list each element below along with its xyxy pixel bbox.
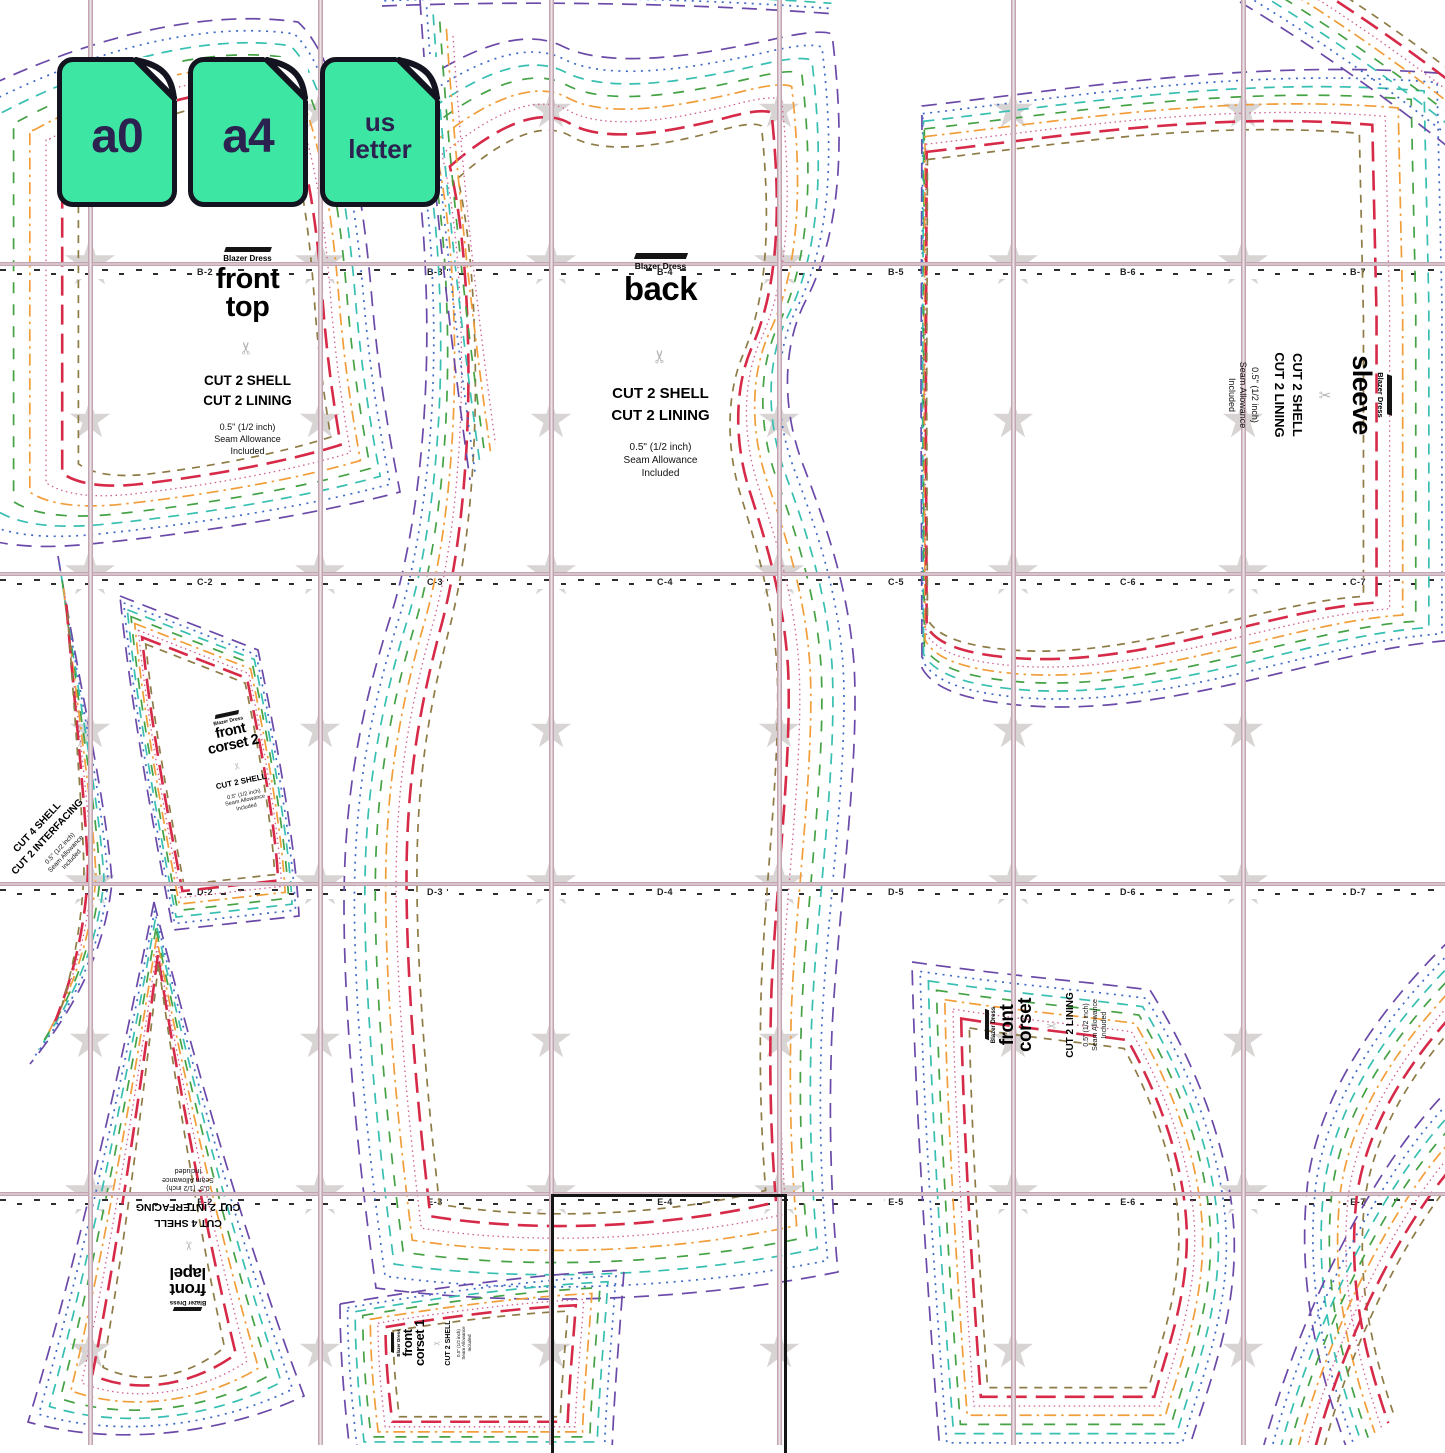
pattern-outline-size-8 — [1362, 1005, 1445, 1418]
cut-instructions: CUT 2 SHELL — [445, 1281, 452, 1406]
pattern-outline-size-5 — [1338, 976, 1445, 1432]
brand-logo-mark — [985, 1009, 989, 1040]
page-boundary-hline — [0, 572, 1445, 576]
brand-logo-mark — [391, 1332, 394, 1353]
seam-allowance-note: 0.5" (1/2 inch)Seam AllowanceIncluded — [558, 441, 763, 480]
pattern-outline-size-8 — [1296, 0, 1445, 93]
scissors-icon: ✂ — [558, 346, 763, 367]
badge-a4[interactable]: a4 — [188, 57, 308, 207]
cut-instructions: CUT 2 SHELLCUT 2 LINING — [558, 383, 763, 427]
piece-label-front-corset: Blazer Dress frontcorset ✂ CUT 2 LINING … — [985, 938, 1135, 1113]
pattern-outline-size-6 — [1307, 1136, 1445, 1445]
pattern-outline-size-3 — [365, 59, 833, 1275]
page-fold-icon — [264, 57, 308, 101]
piece-outline-top-partial — [382, 0, 836, 14]
pattern-layout-canvas: { "brand": {"name": "Blazer Dress"}, "ba… — [0, 0, 1445, 1445]
pattern-outline-size-4 — [1264, 0, 1445, 125]
pattern-outline-size-4 — [1289, 1116, 1445, 1445]
badge-us-letter[interactable]: usletter — [320, 57, 440, 207]
piece-name: frontcorset — [999, 938, 1035, 1113]
piece-name: frontcorset 1 — [402, 1281, 427, 1406]
piece-name: sleeve — [1348, 245, 1374, 545]
cut-instructions: CUT 4 SHELLCUT 2 INTERFACING — [96, 1199, 281, 1229]
badge-label: a4 — [193, 109, 303, 164]
pattern-outline-size-3 — [1280, 1106, 1445, 1445]
piece-name: back — [558, 273, 763, 304]
pattern-outline-size-4 — [1329, 967, 1445, 1438]
brand-name: Blazer Dress — [150, 254, 345, 263]
pattern-outline-size-6 — [453, 36, 496, 444]
seam-allowance-note: 0.5" (1/2 inch)Seam AllowanceIncluded — [150, 422, 345, 457]
piece-label-back: Blazer Dress back ✂ CUT 2 SHELLCUT 2 LIN… — [558, 253, 763, 480]
seam-allowance-note: 0.5" (1/2 inch)Seam AllowanceIncluded — [456, 1281, 473, 1406]
pattern-outline-size-5 — [1298, 1126, 1445, 1445]
page-boundary-vline — [88, 0, 93, 1445]
scissors-icon: ✂ — [1316, 245, 1334, 545]
scissors-icon: ✂ — [150, 338, 345, 358]
brand-logo-mark — [1387, 374, 1392, 416]
page-fold-icon — [133, 57, 177, 101]
page-boundary-hline — [0, 882, 1445, 886]
badge-label: usletter — [325, 109, 435, 164]
page-fold-icon — [396, 57, 440, 101]
page-boundary-vline — [318, 0, 323, 1445]
selected-page-outline[interactable] — [551, 1194, 787, 1453]
piece-label-sleeve: Blazer Dress sleeve ✂ CUT 2 SHELLCUT 2 L… — [1242, 245, 1392, 545]
seam-allowance-note: 0.5" (1/2 inch)Seam AllowanceIncluded — [1083, 938, 1109, 1113]
seam-allowance-note: 0.5" (1/2 inch)Seam AllowanceIncluded — [1226, 245, 1260, 545]
cut-instructions: CUT 2 SHELLCUT 2 LINING — [150, 371, 345, 410]
piece-label-front-corset-1: Blazer Dress frontcorset 1 ✂ CUT 2 SHELL… — [391, 1281, 491, 1406]
piece-name: fronttop — [150, 266, 345, 321]
piece-label-front-lapel: Blazer Dress frontlapel ✂ CUT 4 SHELLCUT… — [96, 1165, 281, 1311]
pattern-outline-size-3 — [387, 0, 832, 3]
cut-instructions: CUT 2 LINING — [1065, 938, 1076, 1113]
piece-name: frontlapel — [96, 1265, 281, 1297]
piece-outline-top-right-partial — [1240, 0, 1445, 150]
seam-allowance-note: 0.5" (1/2 inch)Seam AllowanceIncluded — [96, 1165, 281, 1191]
badge-a0[interactable]: a0 — [57, 57, 177, 207]
pattern-outline-size-6 — [1346, 986, 1445, 1428]
brand-name: Blazer Dress — [96, 1299, 281, 1305]
brand-name: Blazer Dress — [1376, 245, 1385, 545]
cut-instructions: CUT 2 SHELLCUT 2 LINING — [1269, 245, 1307, 545]
brand-logo-mark — [173, 1307, 202, 1311]
brand-logo-mark — [224, 247, 272, 252]
page-boundary-vline — [1241, 0, 1246, 1445]
pattern-outline-size-1 — [1240, 2, 1445, 150]
scissors-icon: ✂ — [96, 1239, 281, 1253]
piece-label-front-top: Blazer Dress fronttop ✂ CUT 2 SHELLCUT 2… — [150, 247, 345, 457]
page-boundary-vline — [1011, 0, 1016, 1445]
brand-logo-mark — [633, 253, 687, 259]
scissors-icon: ✂ — [432, 1281, 441, 1406]
pattern-outline-size-6 — [1280, 0, 1445, 109]
scissors-icon: ✂ — [1044, 938, 1058, 1113]
badge-label: a0 — [62, 109, 172, 164]
